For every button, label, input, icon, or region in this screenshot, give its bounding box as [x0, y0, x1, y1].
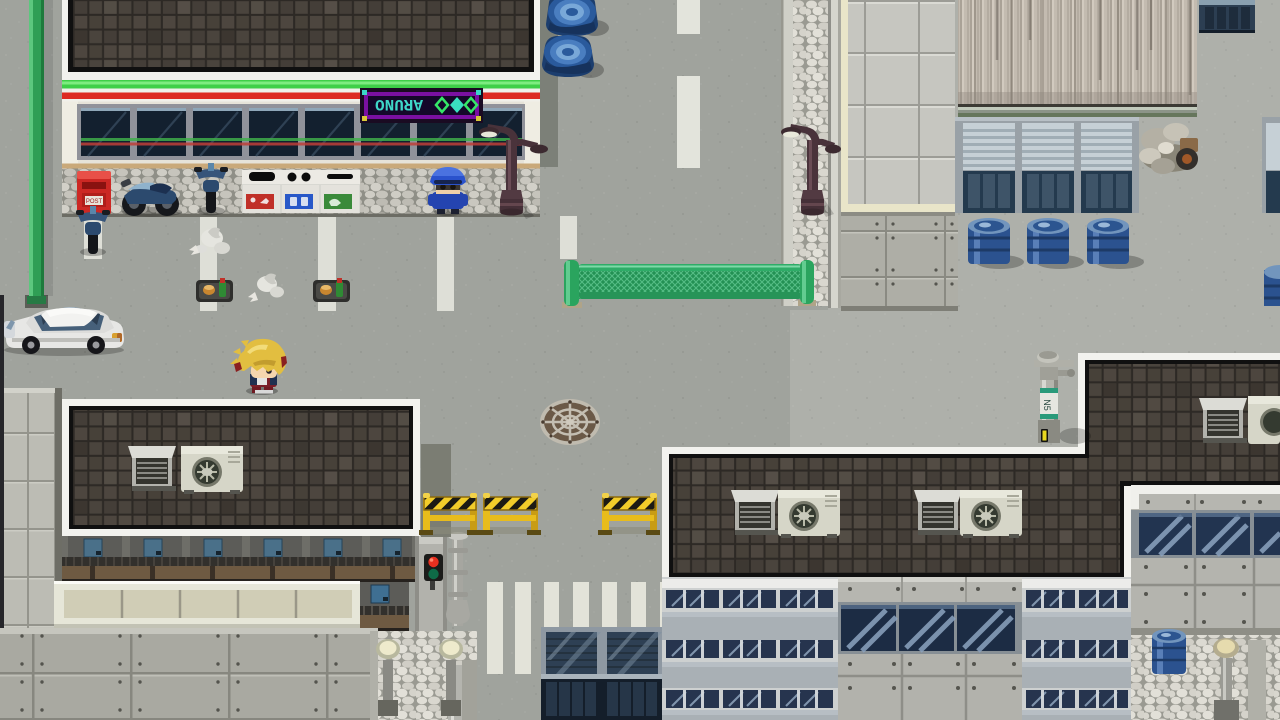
svg-text:ARUNO: ARUNO: [375, 95, 423, 113]
svg-text:N5: N5: [1042, 399, 1052, 411]
svg-text:POST: POST: [86, 199, 103, 205]
